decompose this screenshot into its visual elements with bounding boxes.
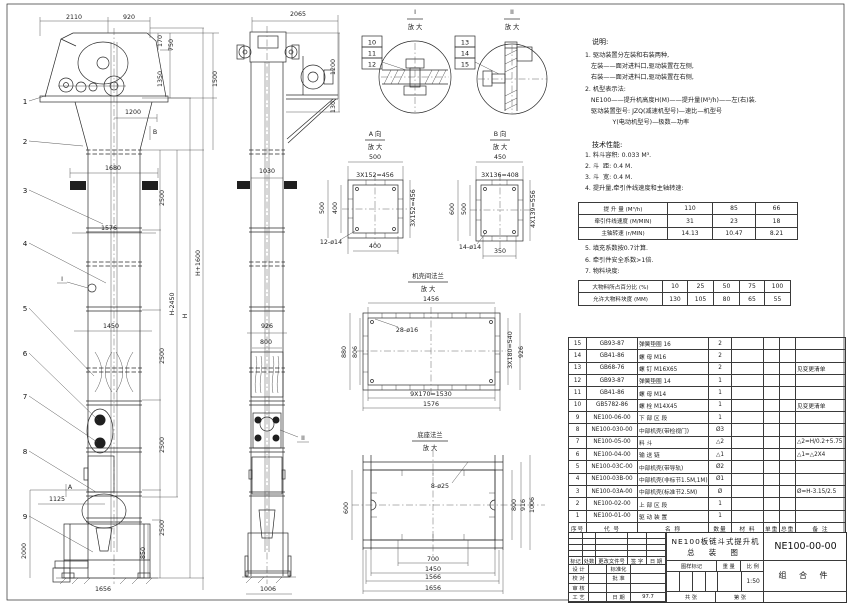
spec-line: 4. 提升量,牵引件线速度和主轴转速: [585,184,840,195]
note-line: Y(电动机型号)—极数—功率 [585,117,845,128]
bom-cell [764,449,780,461]
revision-header: 签 字 [628,557,647,565]
bom-cell [780,461,796,473]
dim-label: 880 [341,346,348,358]
dim-label: 1006 [260,586,276,593]
row-value: 85 [713,203,756,215]
part-balloon-4: 4 [23,239,28,248]
dim-label: 3X152=456 [356,172,394,179]
dim-label: 1680 [105,165,121,172]
part-type-cell: 组 合 件 [763,560,847,592]
bom-cell [780,375,796,387]
signature-cell: 工 艺 [569,593,589,602]
bom-cell [780,473,796,485]
bom-cell: NE100-04-00 [587,449,638,461]
specs-items-2: 5. 填充系数按0.7计算. 6. 牵引件安全系数>1倍. 7. 物料块度: [585,243,840,278]
bom-cell [732,350,764,362]
row-value: 18 [756,215,798,227]
bom-cell: 输 送 链 [638,449,709,461]
bom-row: 9NE100-06-00下 部 区 段1 [569,412,846,424]
bom-cell: 中部机壳(带检视门) [638,424,709,436]
part-ref-10: 10 [368,39,376,47]
bom-cell [780,449,796,461]
dim-label: 2500 [159,520,166,536]
bom-cell [732,338,764,350]
bom-cell: 10 [569,399,587,411]
note-line: 左装——面对进料口,驱动装置在左侧, [585,61,845,72]
spec-line: 2. 斗 距: 0.4 M. [585,162,840,173]
dim-label: 350 [494,248,506,255]
bom-cell [764,375,780,387]
dim-label: 2500 [159,190,166,206]
bom-row: 14GB41-86螺 母 M162 [569,350,846,362]
dim-label: 800 [511,499,518,511]
bom-cell: GB5782-86 [587,399,638,411]
lump-size-table: 大物料所占百分比 (%)10255075100允许大物料块度 (MM)13010… [578,280,791,306]
detail-ii [475,19,547,114]
view-a-title: A 向 [369,129,382,138]
spec-line: 7. 物料块度: [585,266,840,278]
revision-header: 标记 [569,557,583,565]
specs-items-1: 1. 料斗容积: 0.033 M³. 2. 斗 距: 0.4 M. 3. 斗 宽… [585,151,840,195]
bom-cell [796,350,846,362]
bom-cell [780,350,796,362]
note-line: 驱动装置型号: JZQ(减速机型号)—速比—机型号 [585,106,845,117]
dim-label: 600 [449,203,456,215]
bom-row: 1NE100-01-00驱 动 装 置1 [569,510,846,522]
table-row: 大物料所占百分比 (%)10255075100 [579,281,791,293]
bom-cell [780,362,796,374]
dim-label: 600 [343,502,350,514]
drawing-number: NE100-00-00 [774,541,836,552]
dim-label: 800 [260,339,272,346]
detail-ii-ref: II [301,435,305,442]
revision-grid: 标记处数更改文件号签 字日 期 设 计标准化校 对批 准审 核工 艺日 期97.… [569,533,666,602]
bom-row: 3NE100-03A-00中部机壳(标准节2.5M)ØØ=H-3.15/2.5 [569,486,846,498]
part-balloon-1: 1 [23,97,28,106]
revision-header: 更改文件号 [596,557,628,565]
signature-cell: 设 计 [569,565,589,574]
bom-cell: Ø=H-3.15/2.5 [796,486,846,498]
row-value: 23 [713,215,756,227]
bom-cell: 料 斗 [638,436,709,448]
bom-cell: 11 [569,387,587,399]
bom-cell [732,399,764,411]
signature-cell [631,574,666,583]
title-block-blank [763,591,847,602]
dim-label: 1656 [425,585,441,592]
bom-cell [732,387,764,399]
part-balloon-9: 9 [23,512,28,521]
bom-cell [764,498,780,510]
table-row: 主轴转速 (r/MIN)14.1310.478.21 [579,227,798,239]
part-balloon-3: 3 [23,186,28,195]
dim-label: 9X170=1530 [410,391,452,398]
bom-cell: NE100-03A-00 [587,486,638,498]
row-label: 大物料所占百分比 (%) [579,281,663,293]
dim-label: 1125 [49,496,65,503]
dim-label: 170 [157,35,164,47]
bom-cell: NE100-03C-00 [587,461,638,473]
bom-cell [732,424,764,436]
bom-cell: 上 部 区 段 [638,498,709,510]
dim-label: 850 [140,547,147,559]
stamp-box [706,571,719,592]
row-label: 允许大物料块度 (MM) [579,293,663,305]
bom-cell: 螺 钉 M16X65 [638,362,709,374]
bom-cell: NE100-05-00 [587,436,638,448]
dim-label: 2065 [290,11,306,18]
dim-label: 400 [332,202,339,214]
part-balloon-2: 2 [23,137,28,146]
bom-cell: NE100-06-00 [587,412,638,424]
dim-label: 500 [461,203,468,215]
bom-cell: GB93-87 [587,375,638,387]
bom-cell: 下 部 区 段 [638,412,709,424]
dim-label: 放 大 [421,284,436,293]
row-label: 牵引件线速度 (M/MIN) [579,215,668,227]
bom-cell [764,461,780,473]
base-flange-detail [352,441,545,594]
drawing-number-cell: NE100-00-00 [763,533,847,561]
spec-line: 3. 斗 宽: 0.4 M. [585,173,840,184]
bom-cell: 螺 母 M16 [638,350,709,362]
bom-cell: 2 [709,338,732,350]
performance-table: 提 升 量 (M³/h)1108566牵引件线速度 (M/MIN)312318主… [578,202,798,240]
bom-cell: 12 [569,375,587,387]
bom-cell: Ø1 [709,473,732,485]
row-value: 55 [765,293,791,305]
bom-cell: 6 [569,449,587,461]
bom-cell [732,449,764,461]
bom-cell: 4 [569,473,587,485]
dim-label: 130 [330,101,337,113]
bom-cell: 弹簧垫圈 16 [638,338,709,350]
bom-cell [780,412,796,424]
note-line: 2. 机型表示法: [585,84,845,95]
dim-label: 500 [369,154,381,161]
bom-row: 5NE100-03C-00中部机壳(带导轨)Ø2 [569,461,846,473]
front-view [29,17,219,590]
bom-cell [796,473,846,485]
part-ref-13: 13 [461,39,469,47]
dim-label: 920 [123,14,135,21]
dim-label: 14-ø14 [459,244,481,251]
bom-cell: GB68-76 [587,362,638,374]
sheet-number: 第 张 [716,591,764,602]
bom-cell: 1 [709,498,732,510]
dim-label: 放 大 [408,22,423,31]
dim-label: 3X152=456 [410,189,417,227]
bom-cell [796,412,846,424]
row-value: 110 [668,203,713,215]
scale-value: 1:50 [742,571,764,592]
dim-label: 916 [520,499,527,511]
bom-cell: NE100-02-00 [587,498,638,510]
bom-cell [732,412,764,424]
dim-label: 806 [352,346,359,358]
dim-label: 3X180=540 [507,331,514,369]
row-value: 66 [756,203,798,215]
bom-cell: 9 [569,412,587,424]
row-value: 75 [740,281,765,293]
spec-line: 1. 料斗容积: 0.033 M³. [585,151,840,162]
bom-row: 13GB68-76螺 钉 M16X652见变更清单 [569,362,846,374]
revision-header: 处数 [583,557,596,565]
signature-cell: 97.7 [631,593,666,602]
bom-row: 7NE100-05-00料 斗△2△2=H/0.2+5.75 [569,436,846,448]
row-value: 80 [714,293,740,305]
bom-cell [732,510,764,522]
bom-cell [796,424,846,436]
row-value: 50 [714,281,740,293]
dim-label: 1350 [157,71,164,87]
bom-row: 2NE100-02-00上 部 区 段1 [569,498,846,510]
specs-title: 技术性能: [592,140,622,150]
detail-i-title: I [414,9,416,16]
note-line: 1. 驱动装置分左装和右装两种, [585,50,845,61]
dim-label: 放 大 [493,142,508,151]
signature-cell: 审 核 [569,584,589,593]
bom-cell [780,436,796,448]
part-balloon-8: 8 [23,447,28,456]
bom-cell [764,387,780,399]
bom-cell [732,362,764,374]
bom-table: 15GB93-87弹簧垫圈 16214GB41-86螺 母 M16213GB68… [568,337,846,536]
base-flange-title: 底座法兰 [417,430,442,439]
bom-row: 4NE100-03B-00中部机壳(非标节1.5M,1M)Ø1 [569,473,846,485]
bom-cell: Ø2 [709,461,732,473]
dim-label: 12-ø14 [320,239,342,246]
part-type: 组 合 件 [778,570,832,581]
signature-cell [607,584,631,593]
bom-cell [780,486,796,498]
stamp-boxes-row: 1:50 [666,571,764,591]
dim-label: 1450 [425,566,441,573]
bom-cell: GB41-86 [587,350,638,362]
bom-cell: 弹簧垫圈 14 [638,375,709,387]
bom-cell [732,375,764,387]
dim-label: 3X136=408 [481,172,519,179]
section-a-label: A [68,484,73,491]
dim-label: 放 大 [505,22,520,31]
bom-cell [764,362,780,374]
dim-label: 8-ø25 [431,483,449,490]
bom-cell: 2 [709,362,732,374]
dim-label: 放 大 [423,443,438,452]
revision-header: 日 期 [647,557,666,565]
spec-line: 5. 填充系数按0.7计算. [585,243,840,255]
row-value: 8.21 [756,227,798,239]
bom-cell: 5 [569,461,587,473]
dim-label: 2110 [66,14,82,21]
bom-cell [764,510,780,522]
bom-cell: 螺 栓 M14X45 [638,399,709,411]
dim-label: 28-ø16 [396,327,418,334]
bom-cell [796,338,846,350]
signature-cell [589,584,607,593]
bom-row: 10GB5782-86螺 栓 M14X451见变更清单 [569,399,846,411]
signature-cell: 校 对 [569,574,589,583]
part-balloon-5: 5 [23,304,28,313]
dim-label: 700 [427,556,439,563]
row-value: 105 [688,293,714,305]
dim-label: H-2450 [169,292,176,315]
bom-cell: 驱 动 装 置 [638,510,709,522]
bom-cell: GB93-87 [587,338,638,350]
bom-cell [796,510,846,522]
bom-row: 15GB93-87弹簧垫圈 162 [569,338,846,350]
drawing-sheet: 2110920170750135015001200B168025001576H+… [0,0,850,609]
bom-cell: △2=H/0.2+5.75 [796,436,846,448]
bom-cell [780,498,796,510]
detail-i [379,19,451,113]
dim-label: 1576 [101,225,117,232]
dim-label: 1456 [423,296,439,303]
bom-cell [732,473,764,485]
row-value: 10.47 [713,227,756,239]
bom-cell: 8 [569,424,587,436]
signature-cell: 批 准 [607,574,631,583]
dimension-labels: 2110920170750135015001200B168025001576H+… [21,9,537,593]
row-value: 65 [740,293,765,305]
signature-cell [631,565,666,574]
bom-cell: GB41-86 [587,387,638,399]
bom-cell: 1 [709,412,732,424]
bom-cell: △2 [709,436,732,448]
signature-cell [589,593,607,602]
table-row: 牵引件线速度 (M/MIN)312318 [579,215,798,227]
dim-label: 450 [494,154,506,161]
bom-cell: 螺 母 M14 [638,387,709,399]
bom-row: 11GB41-86螺 母 M141 [569,387,846,399]
spec-line: 6. 牵引件安全系数>1倍. [585,255,840,267]
dim-label: 500 [319,202,326,214]
notes-title: 说明: [592,37,608,47]
bom-cell [764,399,780,411]
bom-cell [732,436,764,448]
section-b-label: B [153,129,157,136]
bom-cell [764,338,780,350]
dim-label: 750 [168,39,175,51]
row-value: 130 [663,293,688,305]
dim-label: 1576 [423,401,439,408]
bom-cell: NE100-030-00 [587,424,638,436]
bom-cell [796,498,846,510]
bom-cell: 中部机壳(带导轨) [638,461,709,473]
row-value: 31 [668,215,713,227]
row-label: 提 升 量 (M³/h) [579,203,668,215]
bom-cell [796,375,846,387]
bom-cell [732,498,764,510]
bom-cell [764,486,780,498]
dim-label: 1006 [529,497,536,513]
part-ref-15: 15 [461,61,469,69]
detail-ii-title: II [510,9,514,16]
bom-cell: 2 [709,350,732,362]
dim-label: H+1600 [195,250,202,276]
bom-cell: 中部机壳(标准节2.5M) [638,486,709,498]
bom-cell: 1 [709,399,732,411]
dim-label: 400 [369,243,381,250]
notes-block: 1. 驱动装置分左装和右装两种, 左装——面对进料口,驱动装置在左侧, 右装——… [585,50,845,128]
bom-cell: 15 [569,338,587,350]
signature-cell [589,565,607,574]
part-balloon-7: 7 [23,392,28,401]
signature-cell: 日 期 [607,593,631,602]
dim-label: H [182,313,189,318]
detail-i-ref: I [61,276,63,283]
bom-cell [796,387,846,399]
signature-cell [589,574,607,583]
bom-cell: 见变更清单 [796,362,846,374]
bom-cell: 14 [569,350,587,362]
table-row: 提 升 量 (M³/h)1108566 [579,203,798,215]
weight-cell [718,571,742,592]
stamp-box [693,571,706,592]
dim-label: 2000 [21,543,28,559]
bom-cell: 7 [569,436,587,448]
dim-label: 2500 [159,348,166,364]
bom-cell: NE100-03B-00 [587,473,638,485]
signature-cell: 标准化 [607,565,631,574]
dim-label: 4X139=556 [530,190,537,228]
dim-label: 926 [518,346,525,358]
dim-label: 1030 [259,168,275,175]
bom-row: 8NE100-030-00中部机壳(带检视门)Ø3 [569,424,846,436]
row-value: 25 [688,281,714,293]
row-value: 10 [663,281,688,293]
bom-cell: Ø [709,486,732,498]
note-line: 右装——面对进料口,驱动装置在右侧, [585,72,845,83]
bom-cell [780,399,796,411]
bom-cell: △1=△2X4 [796,449,846,461]
dim-label: 2500 [159,437,166,453]
bom-cell [796,461,846,473]
part-balloon-6: 6 [23,349,28,358]
bom-cell [780,338,796,350]
view-b-title: B 向 [494,129,507,138]
part-ref-11: 11 [368,50,376,58]
dim-label: 1566 [425,574,441,581]
bom-cell [764,350,780,362]
bom-cell [764,436,780,448]
dim-label: 926 [261,323,273,330]
flange-detail-title: 机壳间法兰 [412,271,443,280]
side-view [237,15,340,594]
bom-cell: 1 [709,387,732,399]
bom-cell: 2 [569,498,587,510]
stamp-box [680,571,693,592]
dim-label: 1450 [103,323,119,330]
dim-label: 1500 [212,71,219,87]
dim-label: 放 大 [368,142,383,151]
bom-cell: △1 [709,449,732,461]
title-block: 标记处数更改文件号签 字日 期 设 计标准化校 对批 准审 核工 艺日 期97.… [568,532,847,603]
bom-cell [732,486,764,498]
stamp-header-row: 图样标记 重 量 比 例 [666,560,764,571]
bom-cell: 中部机壳(非标节1.5M,1M) [638,473,709,485]
sheet-count-row: 共 张 第 张 [666,591,764,602]
row-label: 主轴转速 (r/MIN) [579,227,668,239]
bom-cell [780,510,796,522]
bom-cell [780,387,796,399]
bom-cell [780,424,796,436]
bom-cell: 见变更清单 [796,399,846,411]
bom-cell: 1 [569,510,587,522]
part-balloons: 123456789 [23,97,28,521]
part-ref-14: 14 [461,50,469,58]
